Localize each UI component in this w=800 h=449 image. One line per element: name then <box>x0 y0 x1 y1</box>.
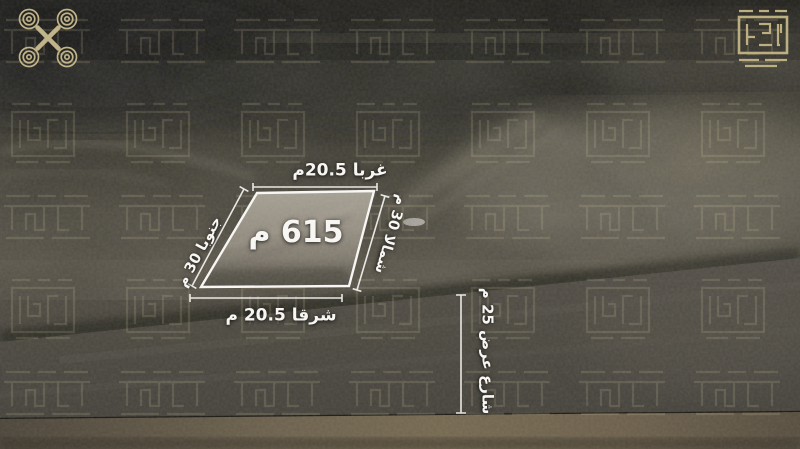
east-dimension-line <box>190 294 342 302</box>
street-width-label: شارع عرض 25 م <box>480 288 495 415</box>
street-width-line <box>456 295 466 413</box>
west-dimension-label: غربا 20.5م <box>292 163 387 180</box>
east-dimension-label: شرقا 20.5 م <box>225 308 336 325</box>
west-dimension-line <box>253 183 377 191</box>
listing-image: غربا 20.5م شرقا 20.5 م جنوبا 30 م شمالا … <box>0 0 800 449</box>
plot-area-label: 615 م <box>248 218 343 248</box>
